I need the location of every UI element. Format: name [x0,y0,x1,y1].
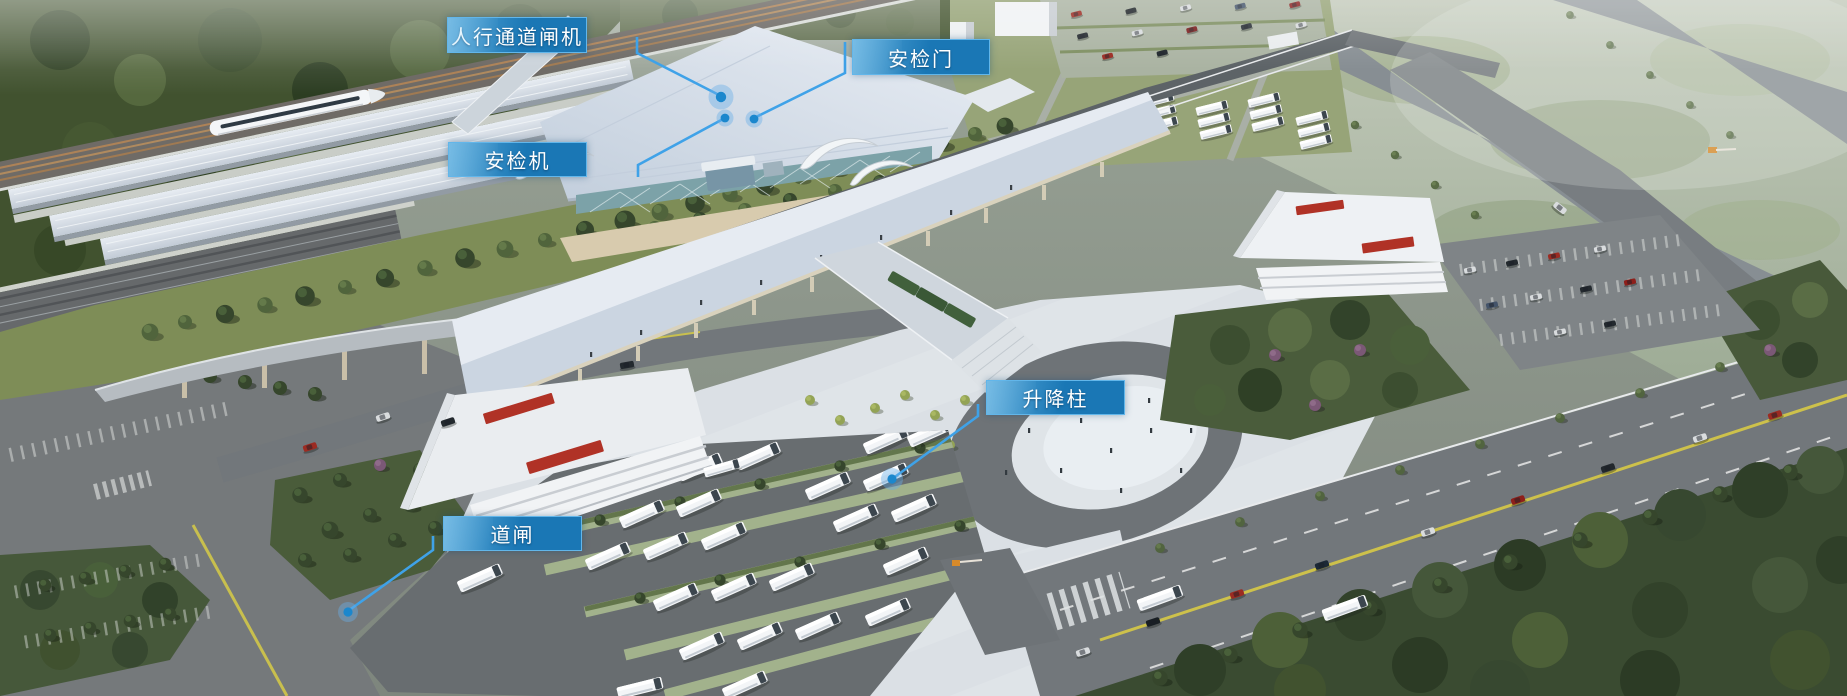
callout-security-scanner[interactable]: 安检机 [448,142,587,177]
callout-label: 安检机 [485,145,551,174]
annotated-station-render: 人行通道闸机 安检门 安检机 升降柱 道闸 [0,0,1847,696]
callout-lifting-bollard[interactable]: 升降柱 [986,380,1125,415]
barrier-gate-icon [952,560,960,566]
callout-label: 人行通道闸机 [451,21,583,50]
callout-security-door[interactable]: 安检门 [852,39,990,75]
callout-label: 安检门 [888,43,954,72]
callout-label: 道闸 [491,519,535,548]
callout-label: 升降柱 [1023,383,1089,412]
callout-pedestrian-channel-gate[interactable]: 人行通道闸机 [447,17,587,53]
station-aerial-scene [0,0,1847,696]
callout-road-barrier[interactable]: 道闸 [443,516,582,551]
